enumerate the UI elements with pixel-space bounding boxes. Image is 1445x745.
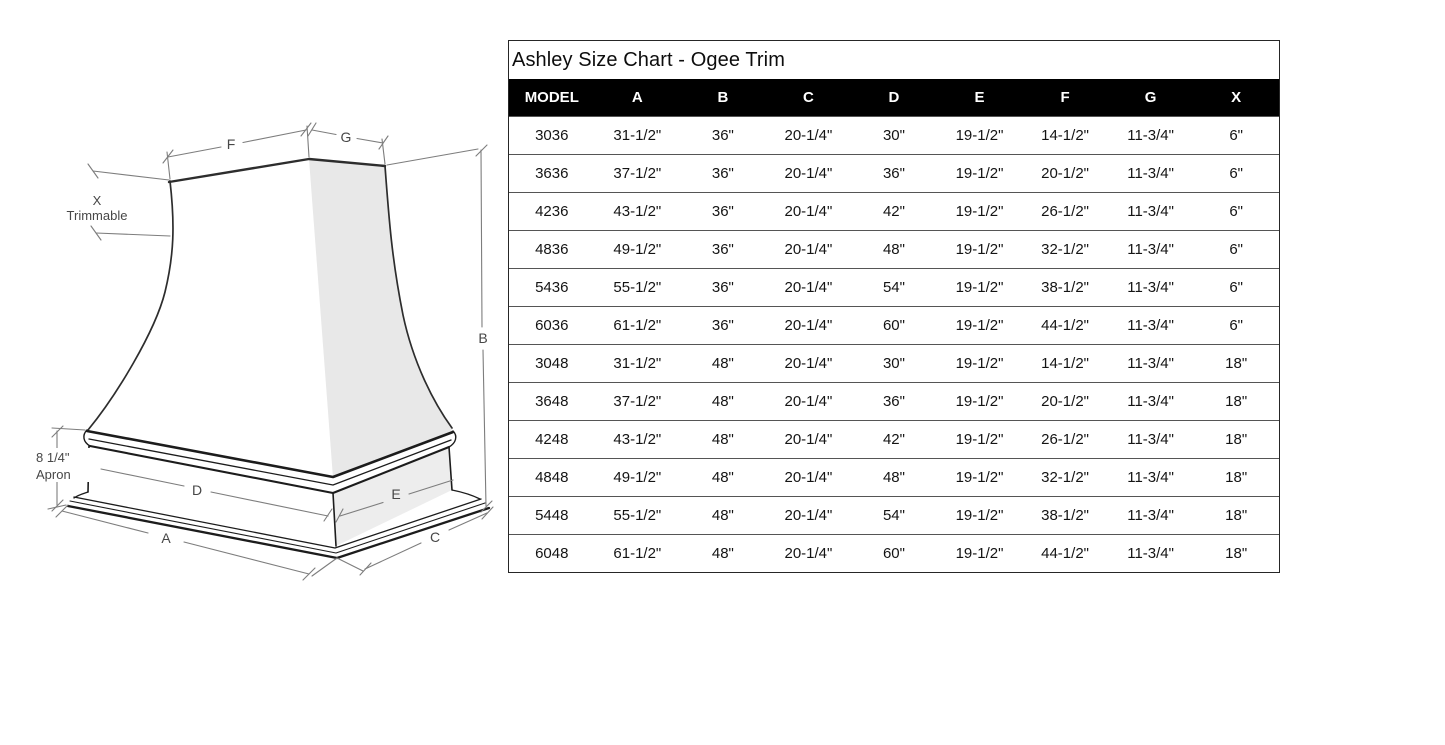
cell-g: 11-3/4" — [1108, 535, 1194, 573]
cell-e: 19-1/2" — [937, 535, 1023, 573]
cell-x: 6" — [1193, 117, 1279, 155]
cell-g: 11-3/4" — [1108, 231, 1194, 269]
dim-label-e: E — [391, 486, 400, 502]
cell-c: 20-1/4" — [766, 155, 852, 193]
table-row: 423643-1/2"36"20-1/4"42"19-1/2"26-1/2"11… — [509, 193, 1279, 231]
dim-x-arrow-lines — [93, 171, 170, 236]
cell-g: 11-3/4" — [1108, 117, 1194, 155]
base-molding-step-right — [452, 490, 480, 499]
header-row: MODELABCDEFGX — [509, 79, 1279, 117]
cell-c: 20-1/4" — [766, 231, 852, 269]
cell-x: 6" — [1193, 307, 1279, 345]
cell-c: 20-1/4" — [766, 535, 852, 573]
cell-x: 18" — [1193, 421, 1279, 459]
cell-a: 43-1/2" — [595, 193, 681, 231]
cell-e: 19-1/2" — [937, 193, 1023, 231]
trimmable-label: Trimmable — [67, 208, 128, 223]
cell-x: 6" — [1193, 231, 1279, 269]
cell-e: 19-1/2" — [937, 269, 1023, 307]
cell-g: 11-3/4" — [1108, 307, 1194, 345]
column-header-e: E — [937, 79, 1023, 117]
dim-label-b: B — [478, 330, 487, 346]
cell-f: 26-1/2" — [1022, 421, 1108, 459]
cell-model: 4236 — [509, 193, 595, 231]
cell-e: 19-1/2" — [937, 345, 1023, 383]
cell-f: 32-1/2" — [1022, 459, 1108, 497]
cell-e: 19-1/2" — [937, 497, 1023, 535]
cell-e: 19-1/2" — [937, 117, 1023, 155]
cell-c: 20-1/4" — [766, 345, 852, 383]
table-row: 603661-1/2"36"20-1/4"60"19-1/2"44-1/2"11… — [509, 307, 1279, 345]
cell-a: 31-1/2" — [595, 345, 681, 383]
cell-e: 19-1/2" — [937, 459, 1023, 497]
dimension-lines — [48, 123, 493, 580]
cell-d: 42" — [851, 193, 937, 231]
cell-a: 49-1/2" — [595, 459, 681, 497]
table-row: 364837-1/2"48"20-1/4"36"19-1/2"20-1/2"11… — [509, 383, 1279, 421]
cell-d: 30" — [851, 117, 937, 155]
dim-label-a: A — [161, 530, 171, 546]
table-title: Ashley Size Chart - Ogee Trim — [509, 41, 1279, 79]
apron-annotation: 8 1/4" Apron — [33, 448, 91, 482]
cell-d: 42" — [851, 421, 937, 459]
table-row: 483649-1/2"36"20-1/4"48"19-1/2"32-1/2"11… — [509, 231, 1279, 269]
cell-b: 48" — [680, 383, 766, 421]
cell-c: 20-1/4" — [766, 497, 852, 535]
dim-label-d: D — [192, 482, 202, 498]
cell-a: 55-1/2" — [595, 497, 681, 535]
cell-e: 19-1/2" — [937, 383, 1023, 421]
cell-x: 18" — [1193, 535, 1279, 573]
cell-b: 36" — [680, 117, 766, 155]
cell-a: 55-1/2" — [595, 269, 681, 307]
cell-model: 4836 — [509, 231, 595, 269]
cell-f: 38-1/2" — [1022, 269, 1108, 307]
trim-x-label: X — [93, 193, 102, 208]
cell-d: 54" — [851, 497, 937, 535]
table-row: 424843-1/2"48"20-1/4"42"19-1/2"26-1/2"11… — [509, 421, 1279, 459]
table-row: 543655-1/2"36"20-1/4"54"19-1/2"38-1/2"11… — [509, 269, 1279, 307]
cell-g: 11-3/4" — [1108, 345, 1194, 383]
cell-model: 5448 — [509, 497, 595, 535]
cell-a: 43-1/2" — [595, 421, 681, 459]
cell-d: 54" — [851, 269, 937, 307]
cell-model: 6036 — [509, 307, 595, 345]
cell-c: 20-1/4" — [766, 193, 852, 231]
apron-word-label: Apron — [36, 467, 71, 482]
cell-e: 19-1/2" — [937, 307, 1023, 345]
dim-a-line — [62, 511, 309, 574]
dim-label-f: F — [227, 136, 236, 152]
cell-g: 11-3/4" — [1108, 421, 1194, 459]
size-chart-table: MODELABCDEFGX 303631-1/2"36"20-1/4"30"19… — [509, 79, 1279, 572]
dim-b-ticks — [476, 145, 492, 512]
cell-c: 20-1/4" — [766, 421, 852, 459]
cell-model: 3048 — [509, 345, 595, 383]
cell-f: 14-1/2" — [1022, 117, 1108, 155]
cell-a: 37-1/2" — [595, 383, 681, 421]
cell-d: 48" — [851, 459, 937, 497]
cell-e: 19-1/2" — [937, 231, 1023, 269]
cell-c: 20-1/4" — [766, 117, 852, 155]
cell-b: 36" — [680, 307, 766, 345]
cell-x: 18" — [1193, 345, 1279, 383]
dim-f-line — [168, 130, 306, 157]
cell-f: 44-1/2" — [1022, 535, 1108, 573]
cell-d: 36" — [851, 383, 937, 421]
cell-b: 48" — [680, 535, 766, 573]
cell-x: 18" — [1193, 383, 1279, 421]
cell-b: 48" — [680, 459, 766, 497]
page: F G B D E A C X Trimmable 8 1/4" Apron A… — [0, 0, 1445, 745]
cell-d: 48" — [851, 231, 937, 269]
hood-diagram: F G B D E A C X Trimmable 8 1/4" Apron — [0, 0, 508, 620]
cell-d: 60" — [851, 535, 937, 573]
table-row: 604861-1/2"48"20-1/4"60"19-1/2"44-1/2"11… — [509, 535, 1279, 573]
cell-f: 38-1/2" — [1022, 497, 1108, 535]
dim-label-c: C — [430, 529, 440, 545]
column-header-f: F — [1022, 79, 1108, 117]
dim-c-ext — [337, 558, 363, 571]
cell-a: 61-1/2" — [595, 535, 681, 573]
cell-f: 44-1/2" — [1022, 307, 1108, 345]
table-row: 484849-1/2"48"20-1/4"48"19-1/2"32-1/2"11… — [509, 459, 1279, 497]
cell-g: 11-3/4" — [1108, 383, 1194, 421]
cell-g: 11-3/4" — [1108, 459, 1194, 497]
dim-b-line — [481, 150, 486, 506]
size-chart-panel: Ashley Size Chart - Ogee Trim MODELABCDE… — [508, 40, 1280, 573]
cell-a: 31-1/2" — [595, 117, 681, 155]
column-header-c: C — [766, 79, 852, 117]
cell-a: 49-1/2" — [595, 231, 681, 269]
cell-f: 20-1/2" — [1022, 155, 1108, 193]
cell-c: 20-1/4" — [766, 269, 852, 307]
cell-f: 26-1/2" — [1022, 193, 1108, 231]
cell-d: 36" — [851, 155, 937, 193]
column-header-model: MODEL — [509, 79, 595, 117]
cell-model: 4848 — [509, 459, 595, 497]
cell-b: 36" — [680, 155, 766, 193]
cell-c: 20-1/4" — [766, 307, 852, 345]
dim-b-ext — [387, 149, 478, 165]
cell-b: 48" — [680, 421, 766, 459]
column-header-a: A — [595, 79, 681, 117]
table-row: 304831-1/2"48"20-1/4"30"19-1/2"14-1/2"11… — [509, 345, 1279, 383]
dim-label-g: G — [341, 129, 352, 145]
column-header-d: D — [851, 79, 937, 117]
column-header-b: B — [680, 79, 766, 117]
cell-a: 61-1/2" — [595, 307, 681, 345]
cell-model: 3648 — [509, 383, 595, 421]
cell-g: 11-3/4" — [1108, 497, 1194, 535]
base-bottom-edge — [68, 506, 489, 558]
cell-g: 11-3/4" — [1108, 269, 1194, 307]
cell-x: 6" — [1193, 269, 1279, 307]
cell-b: 48" — [680, 345, 766, 383]
cell-c: 20-1/4" — [766, 459, 852, 497]
cell-x: 6" — [1193, 193, 1279, 231]
table-row: 363637-1/2"36"20-1/4"36"19-1/2"20-1/2"11… — [509, 155, 1279, 193]
column-header-x: X — [1193, 79, 1279, 117]
cell-f: 14-1/2" — [1022, 345, 1108, 383]
cell-d: 60" — [851, 307, 937, 345]
cell-g: 11-3/4" — [1108, 193, 1194, 231]
cell-model: 3036 — [509, 117, 595, 155]
hood-diagram-svg: F G B D E A C X Trimmable 8 1/4" Apron — [0, 0, 508, 620]
cell-b: 36" — [680, 193, 766, 231]
table-row: 303631-1/2"36"20-1/4"30"19-1/2"14-1/2"11… — [509, 117, 1279, 155]
table-body: 303631-1/2"36"20-1/4"30"19-1/2"14-1/2"11… — [509, 117, 1279, 573]
cell-model: 6048 — [509, 535, 595, 573]
cell-x: 18" — [1193, 459, 1279, 497]
apron-size-label: 8 1/4" — [36, 450, 70, 465]
cell-b: 48" — [680, 497, 766, 535]
cell-b: 36" — [680, 231, 766, 269]
cell-f: 32-1/2" — [1022, 231, 1108, 269]
cell-x: 6" — [1193, 155, 1279, 193]
cell-d: 30" — [851, 345, 937, 383]
cell-model: 5436 — [509, 269, 595, 307]
cell-b: 36" — [680, 269, 766, 307]
cell-model: 3636 — [509, 155, 595, 193]
column-header-g: G — [1108, 79, 1194, 117]
cell-e: 19-1/2" — [937, 155, 1023, 193]
cell-c: 20-1/4" — [766, 383, 852, 421]
dim-f-ticks — [163, 123, 311, 163]
cell-g: 11-3/4" — [1108, 155, 1194, 193]
cell-x: 18" — [1193, 497, 1279, 535]
cell-a: 37-1/2" — [595, 155, 681, 193]
cell-f: 20-1/2" — [1022, 383, 1108, 421]
cell-model: 4248 — [509, 421, 595, 459]
dim-a-ext — [312, 558, 337, 576]
table-row: 544855-1/2"48"20-1/4"54"19-1/2"38-1/2"11… — [509, 497, 1279, 535]
hood-right-face-shade — [309, 159, 453, 478]
cell-e: 19-1/2" — [937, 421, 1023, 459]
